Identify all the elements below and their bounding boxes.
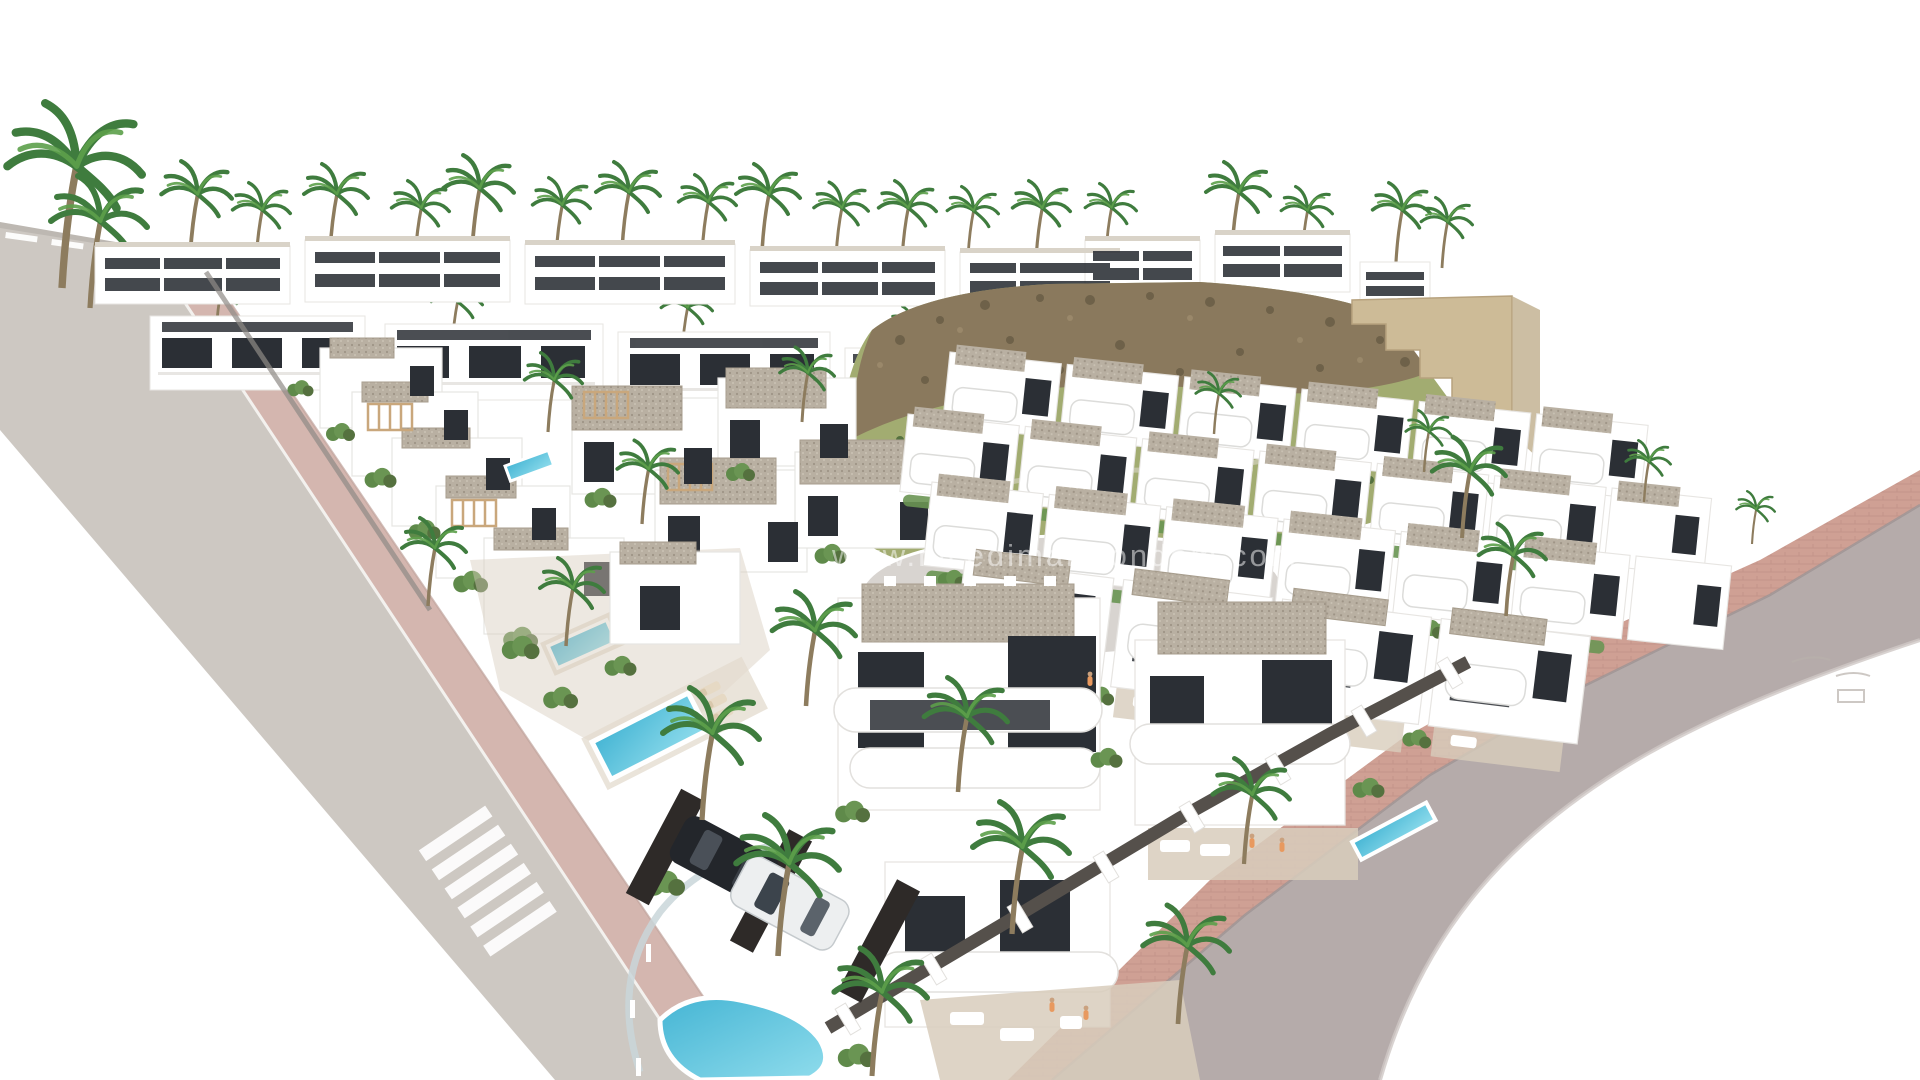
watermark-text: www.nicedimareiondom.com [831, 538, 1299, 573]
render-scene: www.nicedimareiondom.com [0, 0, 1920, 1080]
kidney-pool [660, 998, 826, 1080]
render-image: www.nicedimareiondom.com [0, 0, 1920, 1080]
